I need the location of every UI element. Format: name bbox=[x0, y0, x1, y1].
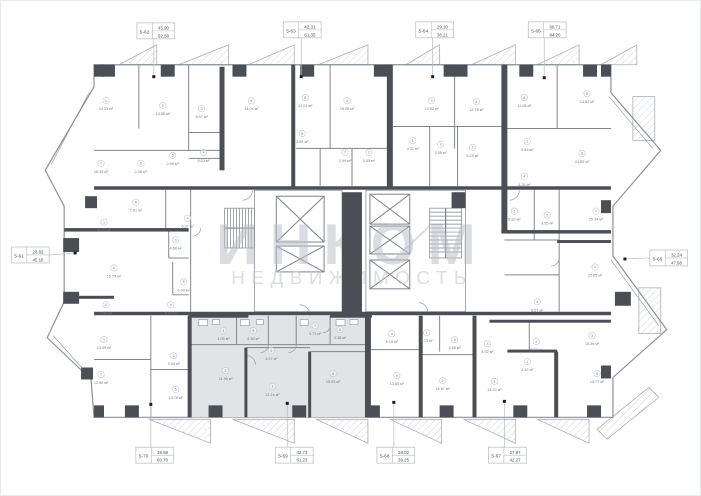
room-area: 3.68 м² bbox=[448, 346, 461, 350]
room-area: 13.82 м² bbox=[580, 100, 595, 104]
room-area: 2.06 м² bbox=[167, 162, 180, 166]
room-area: 2.99 м² bbox=[339, 159, 352, 163]
unit-id: 5-68 bbox=[380, 454, 390, 460]
room-number: 3 bbox=[440, 143, 442, 147]
room-number: 1 bbox=[594, 265, 596, 269]
room-label: 45.03 м² bbox=[197, 149, 210, 163]
leader-dot bbox=[623, 257, 626, 260]
room-number: 5 bbox=[252, 329, 254, 333]
room-label: 14.42 м² bbox=[521, 358, 534, 372]
leader-dot bbox=[503, 400, 506, 403]
room-label: 315.39 м² bbox=[585, 332, 600, 346]
room-label: 512.01 м² bbox=[298, 94, 313, 108]
room-number: 5 bbox=[586, 92, 588, 96]
room-number: 3 bbox=[454, 338, 456, 342]
room-area: 24.85 м² bbox=[575, 160, 590, 164]
unit-area-living: 42.73 bbox=[296, 450, 308, 455]
unit-id: 5-66 bbox=[653, 256, 663, 262]
room-number: 8 bbox=[250, 99, 252, 103]
room-number: 4 bbox=[223, 329, 225, 333]
room-area: 5.03 м² bbox=[178, 288, 191, 292]
room-label: 25.27 м² bbox=[530, 338, 543, 352]
room-area: 4.63 м² bbox=[521, 148, 534, 152]
unit-area-total: 62.58 bbox=[158, 33, 170, 38]
room-number: 3 bbox=[339, 328, 341, 332]
room-label: 14.31 м² bbox=[407, 137, 420, 151]
leader-dot bbox=[149, 403, 152, 406]
room-label: 415.06 м² bbox=[340, 97, 355, 111]
room-area: 3.38 м² bbox=[334, 336, 347, 340]
unit-area-total: 42.27 bbox=[510, 458, 522, 463]
room-area: 5.57 м² bbox=[531, 308, 544, 312]
room-area: 12.01 м² bbox=[298, 104, 313, 108]
room-area: 15.06 м² bbox=[340, 107, 355, 111]
room-area: 4.42 м² bbox=[521, 368, 534, 372]
leader-dot bbox=[300, 75, 303, 78]
room-area: 7.61 м² bbox=[130, 209, 143, 213]
room-area: 14.20 м² bbox=[487, 388, 502, 392]
room-label: 55.03 м² bbox=[178, 279, 191, 293]
room-label: 62.08 м² bbox=[135, 160, 148, 174]
callout-leader-line bbox=[625, 258, 650, 259]
leader-dot bbox=[543, 76, 546, 79]
room-number: 6 bbox=[270, 349, 272, 353]
room-area: 5.83 м² bbox=[508, 218, 521, 222]
room-label: 46.07 м² bbox=[182, 215, 195, 229]
room-area: 2.73 м² bbox=[421, 339, 434, 343]
room-area: 3.97 м² bbox=[265, 357, 278, 361]
room-label: 414.20 м² bbox=[487, 378, 502, 392]
room-area: 4.25 м² bbox=[518, 183, 531, 187]
room-number: 1 bbox=[426, 331, 428, 335]
room-area: 11.01 м² bbox=[97, 229, 112, 233]
room-label: 23.53 м² bbox=[363, 149, 376, 163]
room-area: 13.76 м² bbox=[169, 396, 184, 400]
unit-id: 5-64 bbox=[419, 28, 429, 34]
unit-id: 5-70 bbox=[139, 454, 149, 460]
room-number: 2 bbox=[368, 151, 370, 155]
room-number: 1 bbox=[412, 139, 414, 143]
room-label: 67.61 м² bbox=[130, 199, 143, 213]
room-number: 5 bbox=[396, 374, 398, 378]
room-number: 2 bbox=[105, 303, 107, 307]
room-label: 214.88 м² bbox=[156, 102, 171, 116]
unit-area-total: 84.20 bbox=[549, 32, 561, 37]
room-number: 6 bbox=[523, 96, 525, 100]
room-label: 45.57 м² bbox=[531, 299, 544, 313]
room-number: 1 bbox=[526, 140, 528, 144]
room-area: 12.78 м² bbox=[469, 108, 484, 112]
room-label: 33.55 м² bbox=[541, 212, 554, 226]
room-area: 13.09 м² bbox=[97, 346, 112, 350]
room-label: 114.53 м² bbox=[99, 97, 114, 111]
unit-callout-5-70[interactable]: 5-7038.5860.78 bbox=[136, 403, 174, 463]
unit-callout-5-65[interactable]: 5-6560.7184.20 bbox=[528, 22, 566, 79]
room-number: 1 bbox=[526, 360, 528, 364]
unit-area-total: 61.23 bbox=[296, 458, 308, 463]
room-number: 1 bbox=[103, 338, 105, 342]
unit-callout-5-68[interactable]: 5-6828.0239.25 bbox=[377, 401, 415, 463]
room-number: 7 bbox=[100, 373, 102, 377]
room-label: 115.85 м² bbox=[588, 264, 603, 278]
unit-area-living: 32.24 bbox=[671, 253, 683, 258]
room-number: 1 bbox=[103, 220, 105, 224]
room-label: 63.96 м² bbox=[296, 130, 309, 144]
room-number: 2 bbox=[535, 340, 537, 344]
room-label: 611.08 м² bbox=[517, 94, 532, 108]
floor-plan: ИНКОМ НЕДВИЖИМОСТЬ bbox=[1, 1, 700, 495]
room-number: 5 bbox=[596, 372, 598, 376]
room-label: 513.76 м² bbox=[169, 386, 184, 400]
room-number: 3 bbox=[201, 107, 203, 111]
room-label: 34.92 м² bbox=[481, 340, 494, 354]
room-area: 16.33 м² bbox=[94, 170, 109, 174]
room-area: 6.07 м² bbox=[182, 225, 195, 229]
room-area: 14.67 м² bbox=[435, 387, 450, 391]
room-number: 4 bbox=[536, 300, 538, 304]
room-number: 2 bbox=[113, 266, 115, 270]
room-number: 5 bbox=[172, 154, 174, 158]
room-number: 4 bbox=[493, 380, 495, 384]
room-area: 5.03 м² bbox=[197, 159, 210, 163]
room-number: 4 bbox=[170, 303, 172, 307]
room-number: 3 bbox=[431, 99, 433, 103]
room-area: 14.53 м² bbox=[99, 107, 114, 111]
room-area: 12.52 м² bbox=[425, 107, 440, 111]
room-label: 113.09 м² bbox=[97, 336, 112, 350]
room-number: 2 bbox=[472, 146, 474, 150]
room-area: 15.34 м² bbox=[589, 218, 604, 222]
room-area: 3.94 м² bbox=[168, 362, 181, 366]
room-area: 4.68 м² bbox=[170, 247, 183, 251]
room-area: 4.38 м² bbox=[247, 337, 260, 341]
room-area: 5.97 м² bbox=[195, 115, 208, 119]
room-area: 15.39 м² bbox=[585, 342, 600, 346]
room-label: 716.33 м² bbox=[94, 160, 109, 174]
room-number: 7 bbox=[595, 209, 597, 213]
floor-plan-canvas: ИНКОМ НЕДВИЖИМОСТЬ bbox=[0, 0, 701, 496]
room-label: 712.59 м² bbox=[94, 371, 109, 385]
room-label: 214.67 м² bbox=[435, 377, 450, 391]
room-number: 1 bbox=[105, 99, 107, 103]
room-area: 14.04 м² bbox=[244, 107, 259, 111]
room-label: 27.02 м² bbox=[100, 302, 113, 316]
unit-id: 5-67 bbox=[491, 454, 501, 460]
room-area: 14.88 м² bbox=[156, 112, 171, 116]
room-number: 4 bbox=[391, 332, 393, 336]
unit-area-living: 38.58 bbox=[157, 450, 169, 455]
room-label: 25.24 м² bbox=[466, 144, 479, 158]
room-area: 15.85 м² bbox=[588, 273, 603, 277]
callout-leader-line bbox=[49, 253, 75, 255]
leader-dot bbox=[431, 75, 434, 78]
room-area: 11.08 м² bbox=[517, 104, 532, 108]
room-number: 3 bbox=[175, 238, 177, 242]
room-area: 15.93 м² bbox=[326, 380, 341, 384]
room-area: 5.24 м² bbox=[466, 154, 479, 158]
unit-area-total: 38.21 bbox=[437, 32, 449, 37]
room-label: 33.68 м² bbox=[448, 336, 461, 350]
room-label: 72.99 м² bbox=[339, 149, 352, 163]
room-area: 4.05 м² bbox=[217, 337, 230, 341]
room-label: 513.65 м² bbox=[390, 372, 405, 386]
leader-dot bbox=[392, 401, 395, 404]
unit-area-living: 45.90 bbox=[158, 25, 170, 30]
unit-area-total: 47.98 bbox=[671, 260, 683, 265]
room-area: 4.31 м² bbox=[407, 147, 420, 151]
unit-area-total: 60.78 bbox=[157, 458, 169, 463]
room-label: 45.19 м² bbox=[386, 330, 399, 344]
leader-dot bbox=[74, 251, 77, 254]
room-area: 4.92 м² bbox=[481, 350, 494, 354]
room-label: 35.97 м² bbox=[195, 105, 208, 119]
room-label: 34.68 м² bbox=[170, 237, 183, 251]
leader-dot bbox=[152, 75, 155, 78]
room-area: 5.27 м² bbox=[530, 348, 543, 352]
room-number: 2 bbox=[225, 369, 227, 373]
room-area: 3.56 м² bbox=[435, 151, 448, 155]
room-label: 824.85 м² bbox=[575, 150, 590, 164]
room-area: 14.98 м² bbox=[218, 377, 233, 381]
room-label: 111.01 м² bbox=[97, 219, 112, 233]
unit-area-living: 60.71 bbox=[549, 24, 561, 29]
room-number: 5 bbox=[183, 280, 185, 284]
room-number: 4 bbox=[475, 100, 477, 104]
room-number: 6 bbox=[301, 132, 303, 136]
unit-area-living: 28.82 bbox=[33, 250, 45, 255]
unit-area-living: 27.97 bbox=[510, 450, 522, 455]
room-number: 3 bbox=[591, 334, 593, 338]
room-label: 52.06 м² bbox=[167, 152, 180, 166]
unit-id: 5-65 bbox=[531, 28, 541, 34]
room-number: 6 bbox=[140, 162, 142, 166]
room-area: 12.14 м² bbox=[265, 393, 280, 397]
room-label: 412.78 м² bbox=[469, 98, 484, 112]
room-label: 33.56 м² bbox=[435, 141, 448, 155]
room-number: 7 bbox=[344, 151, 346, 155]
room-number: 7 bbox=[314, 324, 316, 328]
unit-id: 5-69 bbox=[278, 454, 288, 460]
room-label: 25.83 м² bbox=[508, 208, 521, 222]
room-number: 7 bbox=[100, 162, 102, 166]
room-area: 13.77 м² bbox=[590, 380, 605, 384]
room-area: 5.02 м² bbox=[165, 311, 178, 315]
room-number: 2 bbox=[513, 209, 515, 213]
room-number: 2 bbox=[162, 104, 164, 108]
room-label: 513.82 м² bbox=[580, 90, 595, 104]
room-number: 4 bbox=[203, 151, 205, 155]
unit-id: 5-63 bbox=[286, 28, 296, 34]
room-label: 33.94 м² bbox=[168, 352, 181, 366]
unit-area-total: 61.35 bbox=[304, 32, 316, 37]
unit-area-living: 28.02 bbox=[398, 450, 410, 455]
room-label: 312.52 м² bbox=[425, 97, 440, 111]
unit-area-living: 29.10 bbox=[437, 24, 449, 29]
room-area: 5.19 м² bbox=[386, 340, 399, 344]
unit-id: 5-62 bbox=[140, 29, 150, 35]
room-number: 1 bbox=[271, 385, 273, 389]
room-number: 3 bbox=[173, 354, 175, 358]
room-number: 4 bbox=[187, 216, 189, 220]
room-area: 3.55 м² bbox=[541, 222, 554, 226]
unit-area-living: 42.31 bbox=[304, 24, 316, 29]
unit-callout-5-66[interactable]: 5-6632.2447.98 bbox=[623, 250, 687, 266]
room-number: 4 bbox=[523, 175, 525, 179]
room-area: 7.02 м² bbox=[100, 311, 113, 315]
unit-id: 5-61 bbox=[14, 253, 24, 259]
room-area: 15.75 м² bbox=[107, 274, 122, 278]
room-number: 2 bbox=[442, 379, 444, 383]
room-number: 5 bbox=[304, 96, 306, 100]
room-number: 3 bbox=[486, 342, 488, 346]
room-area: 2.08 м² bbox=[135, 170, 148, 174]
unit-area-total: 45.18 bbox=[33, 257, 45, 262]
room-number: 3 bbox=[546, 213, 548, 217]
room-area: 3.73 м² bbox=[309, 332, 322, 336]
room-label: 44.25 м² bbox=[518, 173, 531, 187]
room-area: 12.59 м² bbox=[94, 381, 109, 385]
room-area: 3.53 м² bbox=[363, 159, 376, 163]
room-area: 13.65 м² bbox=[390, 382, 405, 386]
room-area: 3.96 м² bbox=[296, 140, 309, 144]
room-number: 8 bbox=[332, 372, 334, 376]
room-number: 4 bbox=[346, 99, 348, 103]
room-label: 215.75 м² bbox=[107, 265, 122, 279]
room-label: 814.04 м² bbox=[244, 97, 259, 111]
room-label: 14.63 м² bbox=[521, 138, 534, 152]
leader-dot bbox=[286, 402, 289, 405]
room-number: 8 bbox=[581, 152, 583, 156]
unit-area-total: 39.25 bbox=[398, 458, 410, 463]
room-number: 6 bbox=[135, 200, 137, 204]
room-label: 45.02 м² bbox=[165, 302, 178, 316]
room-number: 5 bbox=[175, 388, 177, 392]
